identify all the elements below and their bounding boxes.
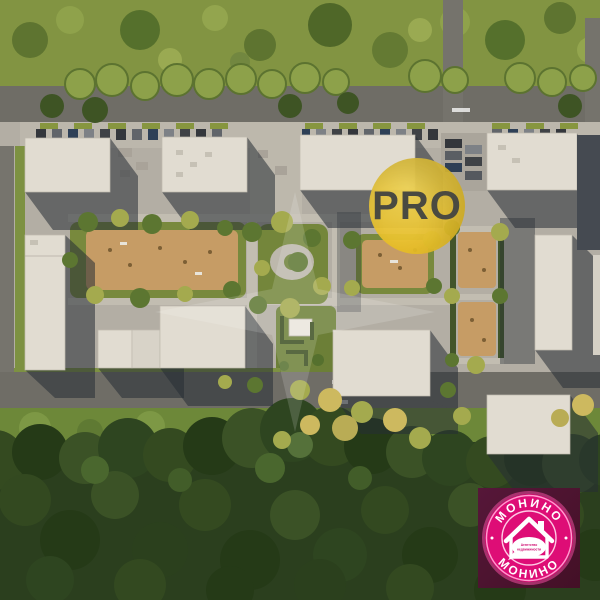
agency-logo-emblem: МОНИНО МОНИНО Агентство недвижимости: [478, 488, 580, 588]
pro-badge: PRO: [369, 158, 465, 254]
logo-dot-right: [565, 537, 568, 540]
logo-tagline-line1: Агентство: [521, 543, 538, 547]
aerial-render: PRO МОНИНО МОНИНО Агентст: [0, 0, 600, 600]
logo-tagline-line2: недвижимости: [517, 548, 541, 552]
agency-logo: МОНИНО МОНИНО Агентство недвижимости: [478, 488, 580, 588]
pro-badge-label: PRO: [372, 186, 462, 226]
logo-dot-left: [491, 537, 494, 540]
